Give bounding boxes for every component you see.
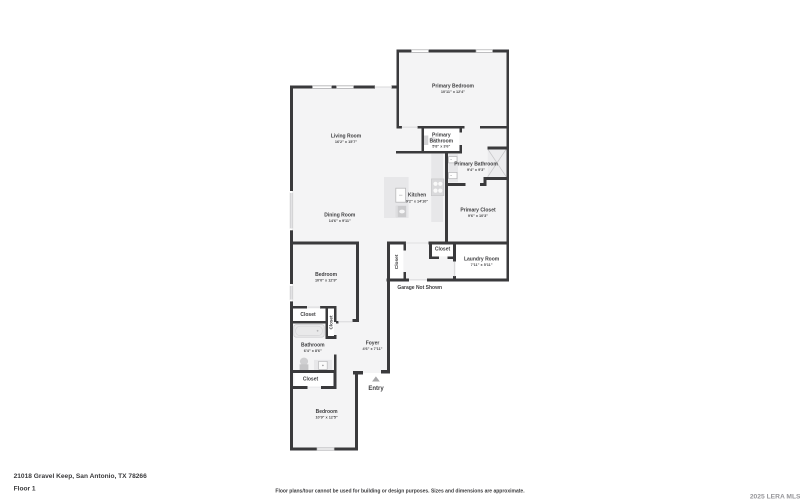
svg-text:Primary Bathroom: Primary Bathroom [454, 161, 498, 167]
svg-text:Closet: Closet [300, 312, 316, 318]
svg-text:Entry: Entry [368, 386, 384, 392]
svg-text:Dining Room: Dining Room [324, 213, 356, 219]
svg-text:9'4" x 9'3": 9'4" x 9'3" [467, 168, 485, 172]
svg-text:2025 LERA MLS: 2025 LERA MLS [750, 493, 800, 500]
svg-text:Closet: Closet [435, 247, 451, 253]
svg-text:Closet: Closet [303, 376, 319, 382]
svg-text:9'6" x 10'3": 9'6" x 10'3" [468, 214, 488, 218]
svg-text:5'8" x 3'6": 5'8" x 3'6" [432, 145, 450, 149]
svg-text:10'0" x 12'9": 10'0" x 12'9" [315, 279, 337, 283]
svg-text:7'11" x 5'11": 7'11" x 5'11" [471, 263, 493, 267]
svg-text:Closet: Closet [394, 254, 400, 269]
svg-text:Bedroom: Bedroom [315, 272, 338, 278]
svg-text:14'6" x 9'11": 14'6" x 9'11" [329, 219, 351, 223]
svg-text:6'4" x 8'6": 6'4" x 8'6" [304, 349, 322, 353]
svg-text:4'6" x 7'11": 4'6" x 7'11" [363, 347, 383, 351]
svg-text:Primary Bedroom: Primary Bedroom [432, 84, 475, 90]
svg-text:Floor plans/tour cannot be use: Floor plans/tour cannot be used for buil… [275, 489, 525, 495]
svg-text:Bedroom: Bedroom [316, 409, 339, 415]
svg-text:Foyer: Foyer [366, 340, 380, 346]
svg-text:Closet: Closet [328, 315, 333, 330]
svg-text:10'11" x 12'4": 10'11" x 12'4" [441, 90, 465, 94]
svg-text:Primary Closet: Primary Closet [460, 208, 496, 214]
svg-text:21018 Gravel Keep, San Antonio: 21018 Gravel Keep, San Antonio, TX 78266 [14, 473, 147, 480]
svg-text:Garage Not Shown: Garage Not Shown [397, 285, 442, 291]
svg-text:Kitchen: Kitchen [408, 193, 426, 199]
svg-text:9'2" x 14'10": 9'2" x 14'10" [406, 199, 428, 203]
svg-text:Living Room: Living Room [331, 133, 362, 139]
svg-text:Bathroom: Bathroom [301, 343, 325, 349]
svg-text:Laundry Room: Laundry Room [464, 257, 500, 263]
svg-text:Floor 1: Floor 1 [14, 486, 36, 493]
svg-text:10'9" x 12'5": 10'9" x 12'5" [315, 416, 337, 420]
svg-text:16'2" x 15'7": 16'2" x 15'7" [335, 140, 357, 144]
